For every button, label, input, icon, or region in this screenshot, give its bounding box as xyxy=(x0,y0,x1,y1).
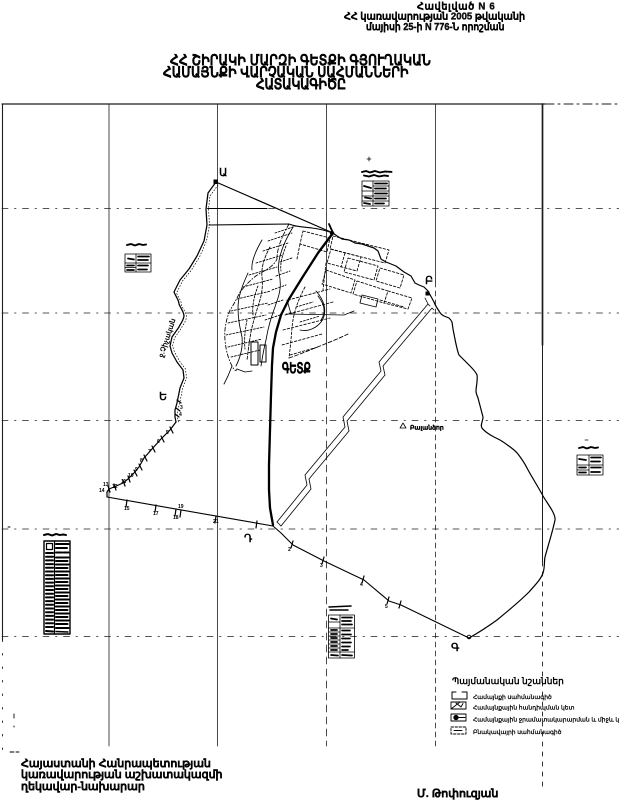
svg-text:4: 4 xyxy=(360,582,363,588)
svg-text:ԳԵՏՔ: ԳԵՏՔ xyxy=(282,360,311,376)
svg-text:Դ: Դ xyxy=(244,533,253,545)
svg-text:4: 4 xyxy=(179,412,182,418)
svg-text:Համայնքային ջրամատակարարման և: Համայնքային ջրամատակարարման և միջև կետեր xyxy=(473,717,619,724)
svg-text:11: 11 xyxy=(121,479,127,485)
svg-text:3: 3 xyxy=(320,563,323,569)
svg-text:5: 5 xyxy=(166,430,169,436)
svg-text:Բալանձոր: Բալանձոր xyxy=(410,425,444,432)
svg-text:Համայնքային հանդիպման կետ: Համայնքային հանդիպման կետ xyxy=(473,704,575,712)
svg-text:Բ: Բ xyxy=(425,275,433,287)
svg-text:ջ.Չիչական: ջ.Չիչական xyxy=(157,317,177,358)
svg-text:Գ: Գ xyxy=(451,642,460,654)
svg-text:12: 12 xyxy=(112,484,118,490)
svg-text:14: 14 xyxy=(99,488,105,494)
svg-text:15: 15 xyxy=(124,506,130,512)
svg-text:Բնակավայրի սահմանագիծ: Բնակավայրի սահմանագիծ xyxy=(473,728,562,736)
svg-text:18: 18 xyxy=(173,515,179,521)
svg-text:9: 9 xyxy=(135,467,138,473)
svg-text:10: 10 xyxy=(128,473,134,479)
svg-text:7: 7 xyxy=(148,449,151,455)
svg-text:2: 2 xyxy=(288,547,291,553)
svg-text:17: 17 xyxy=(153,511,159,517)
svg-text:5: 5 xyxy=(385,604,388,610)
svg-text:Ա: Ա xyxy=(219,167,227,179)
svg-text:13: 13 xyxy=(103,482,109,488)
svg-text:6: 6 xyxy=(157,439,160,445)
svg-text:Ե: Ե xyxy=(159,391,167,403)
svg-text:21: 21 xyxy=(213,519,219,525)
svg-text:Համայնքի սահմանագիծ: Համայնքի սահմանագիծ xyxy=(473,693,552,701)
svg-text:19: 19 xyxy=(178,504,184,510)
svg-text:8: 8 xyxy=(140,458,143,464)
svg-text:3: 3 xyxy=(180,405,183,411)
svg-text:Պայմանական նշաններ: Պայմանական նշաններ xyxy=(452,676,564,687)
